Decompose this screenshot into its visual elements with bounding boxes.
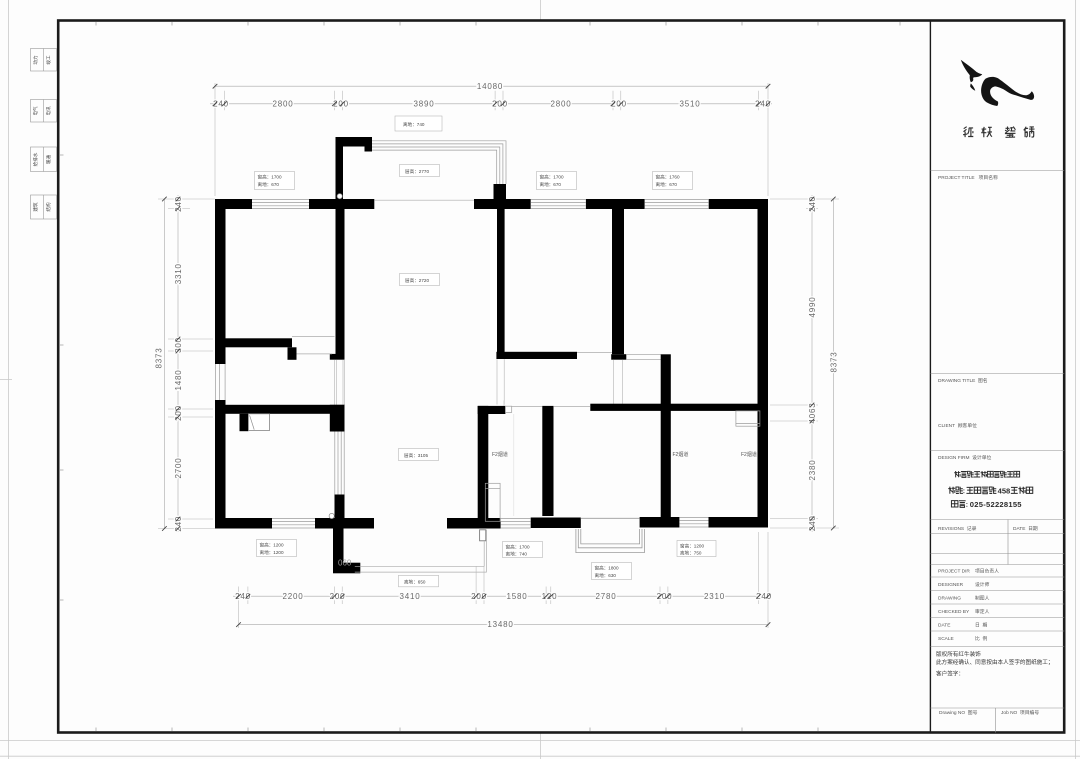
svg-text:层高：2720: 层高：2720 [405, 277, 429, 284]
svg-text:025-52228155: 025-52228155 [970, 500, 1023, 509]
svg-text:离地：1200: 离地：1200 [260, 549, 284, 556]
svg-text:458: 458 [998, 487, 1011, 496]
svg-text:PROJECT DIR: PROJECT DIR [938, 569, 970, 575]
svg-text:窗高：1700: 窗高：1700 [506, 543, 530, 550]
svg-text:DESIGN FIRM 设计单位: DESIGN FIRM 设计单位 [938, 454, 992, 461]
svg-text:项目负责人: 项目负责人 [975, 568, 999, 575]
svg-text:14080: 14080 [477, 82, 503, 91]
svg-text:DATE 日期: DATE 日期 [1013, 526, 1038, 532]
svg-text:2780: 2780 [596, 592, 617, 601]
svg-text:2380: 2380 [808, 460, 817, 481]
svg-text:120: 120 [542, 592, 558, 601]
svg-text:8373: 8373 [829, 352, 838, 373]
svg-text:F2烟道: F2烟道 [673, 451, 689, 458]
svg-text:离地：670: 离地：670 [540, 181, 562, 188]
svg-text:3890: 3890 [414, 99, 435, 108]
svg-text:窗高：1200: 窗高：1200 [680, 542, 704, 549]
svg-text:窗高：1800: 窗高：1800 [595, 565, 619, 572]
svg-text:离地：650: 离地：650 [404, 578, 426, 585]
svg-text:2800: 2800 [273, 99, 294, 108]
svg-text:窗高：1760: 窗高：1760 [656, 174, 680, 181]
svg-text:F2烟道: F2烟道 [741, 451, 757, 458]
svg-text:离地：670: 离地：670 [656, 181, 678, 188]
svg-text:竣工: 竣工 [45, 55, 52, 65]
svg-text:DATE: DATE [938, 623, 950, 629]
svg-text:060: 060 [338, 559, 352, 568]
svg-text:此方案经确认、同意按由本人签字的图纸施工；: 此方案经确认、同意按由本人签字的图纸施工； [936, 658, 1053, 666]
svg-text:审定人: 审定人 [975, 608, 990, 615]
svg-text:13480: 13480 [487, 620, 513, 629]
svg-text:SCALE: SCALE [938, 636, 954, 642]
svg-text:F2烟道: F2烟道 [492, 451, 508, 458]
svg-text:DESIGNER: DESIGNER [938, 582, 964, 588]
svg-text:2200: 2200 [283, 592, 304, 601]
svg-text:200: 200 [330, 592, 346, 601]
svg-text:3410: 3410 [400, 592, 421, 601]
svg-text:1580: 1580 [507, 592, 528, 601]
svg-text:REVISIONS 记录: REVISIONS 记录 [938, 525, 977, 532]
svg-text:窗高：1700: 窗高：1700 [258, 174, 282, 181]
svg-text:制图人: 制图人 [975, 595, 990, 602]
svg-text:CHECKED BY: CHECKED BY [938, 609, 970, 615]
svg-text:建筑: 建筑 [32, 202, 39, 212]
svg-text:1480: 1480 [174, 370, 183, 391]
svg-text:200: 200 [657, 592, 673, 601]
svg-text:日 期: 日 期 [975, 623, 987, 629]
svg-text:电讯: 电讯 [45, 106, 52, 116]
svg-text:电气: 电气 [32, 106, 38, 116]
svg-text:客户签字：: 客户签字： [936, 670, 964, 678]
svg-text:200: 200 [174, 405, 183, 421]
svg-text:2700: 2700 [174, 458, 183, 479]
svg-text:CLIENT 顾客单位: CLIENT 顾客单位 [938, 422, 977, 429]
svg-text:版权所有红牛装饰: 版权所有红牛装饰 [936, 650, 981, 658]
svg-text:窗高：1200: 窗高：1200 [260, 542, 284, 549]
svg-text:3510: 3510 [680, 99, 701, 108]
svg-text:2310: 2310 [704, 592, 725, 601]
svg-text:DRAWING: DRAWING [938, 596, 961, 602]
svg-text:离地：630: 离地：630 [595, 572, 617, 579]
svg-text:离地：670: 离地：670 [258, 181, 280, 188]
svg-text:层高：3105: 层高：3105 [404, 452, 428, 459]
svg-text:比 例: 比 例 [975, 635, 987, 642]
svg-text:4990: 4990 [808, 297, 817, 318]
svg-text:窗高：1700: 窗高：1700 [540, 174, 564, 181]
svg-text:离地：740: 离地：740 [403, 121, 425, 128]
svg-text:Drawing NO 图号: Drawing NO 图号 [939, 710, 978, 716]
svg-text:层高：2770: 层高：2770 [405, 168, 429, 175]
svg-text:PROJECT TITLE 项目名称: PROJECT TITLE 项目名称 [938, 174, 998, 181]
svg-text:暖通: 暖通 [45, 155, 52, 165]
svg-text:200: 200 [471, 592, 487, 601]
svg-text:动力: 动力 [32, 55, 39, 65]
svg-text:3310: 3310 [174, 263, 183, 284]
svg-text:240: 240 [235, 592, 251, 601]
svg-text:给排水: 给排水 [32, 152, 39, 166]
svg-text:离地：750: 离地：750 [680, 550, 702, 557]
svg-text:DRAWING TITLE 图名: DRAWING TITLE 图名 [938, 377, 988, 384]
svg-text:Job NO 项目编号: Job NO 项目编号 [1001, 709, 1039, 716]
svg-text:2800: 2800 [551, 99, 572, 108]
svg-text:结构: 结构 [45, 202, 52, 212]
svg-text:8373: 8373 [155, 348, 164, 369]
svg-text:离地：740: 离地：740 [506, 551, 528, 558]
svg-text:设计师: 设计师 [975, 581, 990, 588]
svg-text:200: 200 [333, 99, 349, 108]
